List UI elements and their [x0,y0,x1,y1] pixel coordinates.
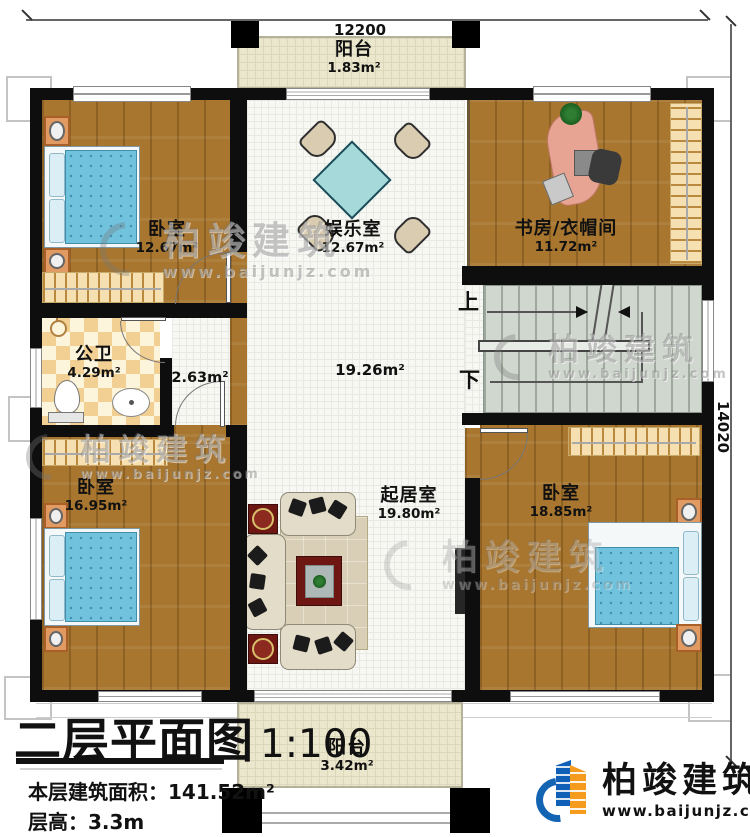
wardrobe [42,272,164,303]
stairs-down-label: 下 [459,364,480,394]
room-label-entertainment: 娱乐室 12.67m² [293,220,413,256]
pillow [49,579,65,621]
quilt [595,547,679,625]
wall-bedroom1-east [230,100,247,252]
pillow [49,535,65,577]
brand-logo: 柏竣建筑 www.baijunjz.com [536,758,750,826]
stair-direction-line-down [490,381,642,383]
balcony-pillar [450,788,490,833]
nightstand [44,116,70,146]
balcony-pillar [452,20,480,48]
table-lamp-icon [252,638,274,660]
dimension-width: 12200 [328,21,392,39]
dimension-height: 14020 [714,392,732,462]
floor-height-row: 层高：3.3m [28,806,144,835]
balcony-sliding-door [254,690,452,702]
pillow [683,577,699,621]
floor-plan-canvas: 阳台 1.83m² 卧室 12.67m² 娱乐室 12.67m² 书房/衣帽间 … [0,0,750,837]
pillow [683,531,699,575]
wall-right [702,88,714,702]
study-floor-edge [467,100,470,266]
room-label-bedroom-3: 卧室 18.85m² [501,484,621,520]
side-table [248,504,278,534]
quilt [65,532,137,622]
plant-icon [313,575,326,588]
stairs-up-label: 上 [458,286,479,316]
room-label-bedroom-2: 卧室 16.95m² [36,478,156,514]
room-label-study-cloakroom: 书房/衣帽间 11.72m² [496,219,636,255]
nightstand [676,624,702,652]
room-label-balcony-top: 阳台 1.83m² [294,40,414,76]
window [702,300,714,382]
double-bed [44,528,140,626]
window [533,86,651,102]
wall-bedroom2-east [230,425,247,690]
wall-stairs-south [462,413,714,425]
title-underline-shadow [20,768,222,770]
wall-stairs-north [462,266,714,285]
balcony-sliding-door [286,88,430,100]
sink-drain [129,400,134,405]
window [510,691,660,702]
lamp-icon [49,631,63,647]
balcony-pillar [231,20,259,48]
hallway-opening-threshold [230,310,247,427]
floor-area-row: 本层建筑面积：141.52m² [28,776,275,805]
toilet-tank [48,412,84,423]
wall-bedroom1-south [30,303,247,318]
title-underline [16,758,224,764]
nightstand [44,626,68,652]
room-label-hall-area: 19.26m² [310,361,430,379]
window [73,86,191,102]
coffee-table [296,556,342,606]
room-label-hallway-area: 2.63m² [140,370,260,386]
double-bed [588,522,702,628]
sofa-pillow [249,573,266,590]
lamp-icon [681,629,697,647]
stair-direction-line-up [487,311,587,313]
bedroom-3-door-threshold [465,428,480,478]
pillow [49,153,65,197]
window [98,691,202,702]
brand-logo-icon [536,758,594,826]
arrow-left-icon [618,306,630,318]
room-label-living-room: 起居室 19.80m² [349,486,469,522]
brand-text: 柏竣建筑 www.baijunjz.com [602,764,750,820]
plant-icon [560,103,582,125]
bedroom-1-door-threshold [230,252,247,306]
room-label-bathroom: 公卫 4.29m² [34,345,154,381]
lamp-icon [49,121,65,141]
wall-bathroom-south [30,425,174,437]
window [30,518,42,620]
bedroom-2-door-threshold [174,425,226,437]
side-table [248,634,278,664]
arrow-right-icon [576,306,588,318]
table-lamp-icon [252,508,274,530]
balcony-railing [232,812,468,824]
nightstand [44,248,70,274]
wardrobe [42,439,168,466]
pillow [49,199,65,243]
toilet-icon [54,380,80,414]
stair-handrail [478,340,650,352]
lamp-icon [49,253,65,269]
lamp-icon [681,503,697,521]
cloakroom-closet [670,103,702,264]
ceiling-lamp-icon [50,320,67,337]
wall-bathroom-east [160,358,172,425]
room-label-bedroom-1: 卧室 12.67m² [107,220,227,256]
wardrobe [568,427,700,456]
